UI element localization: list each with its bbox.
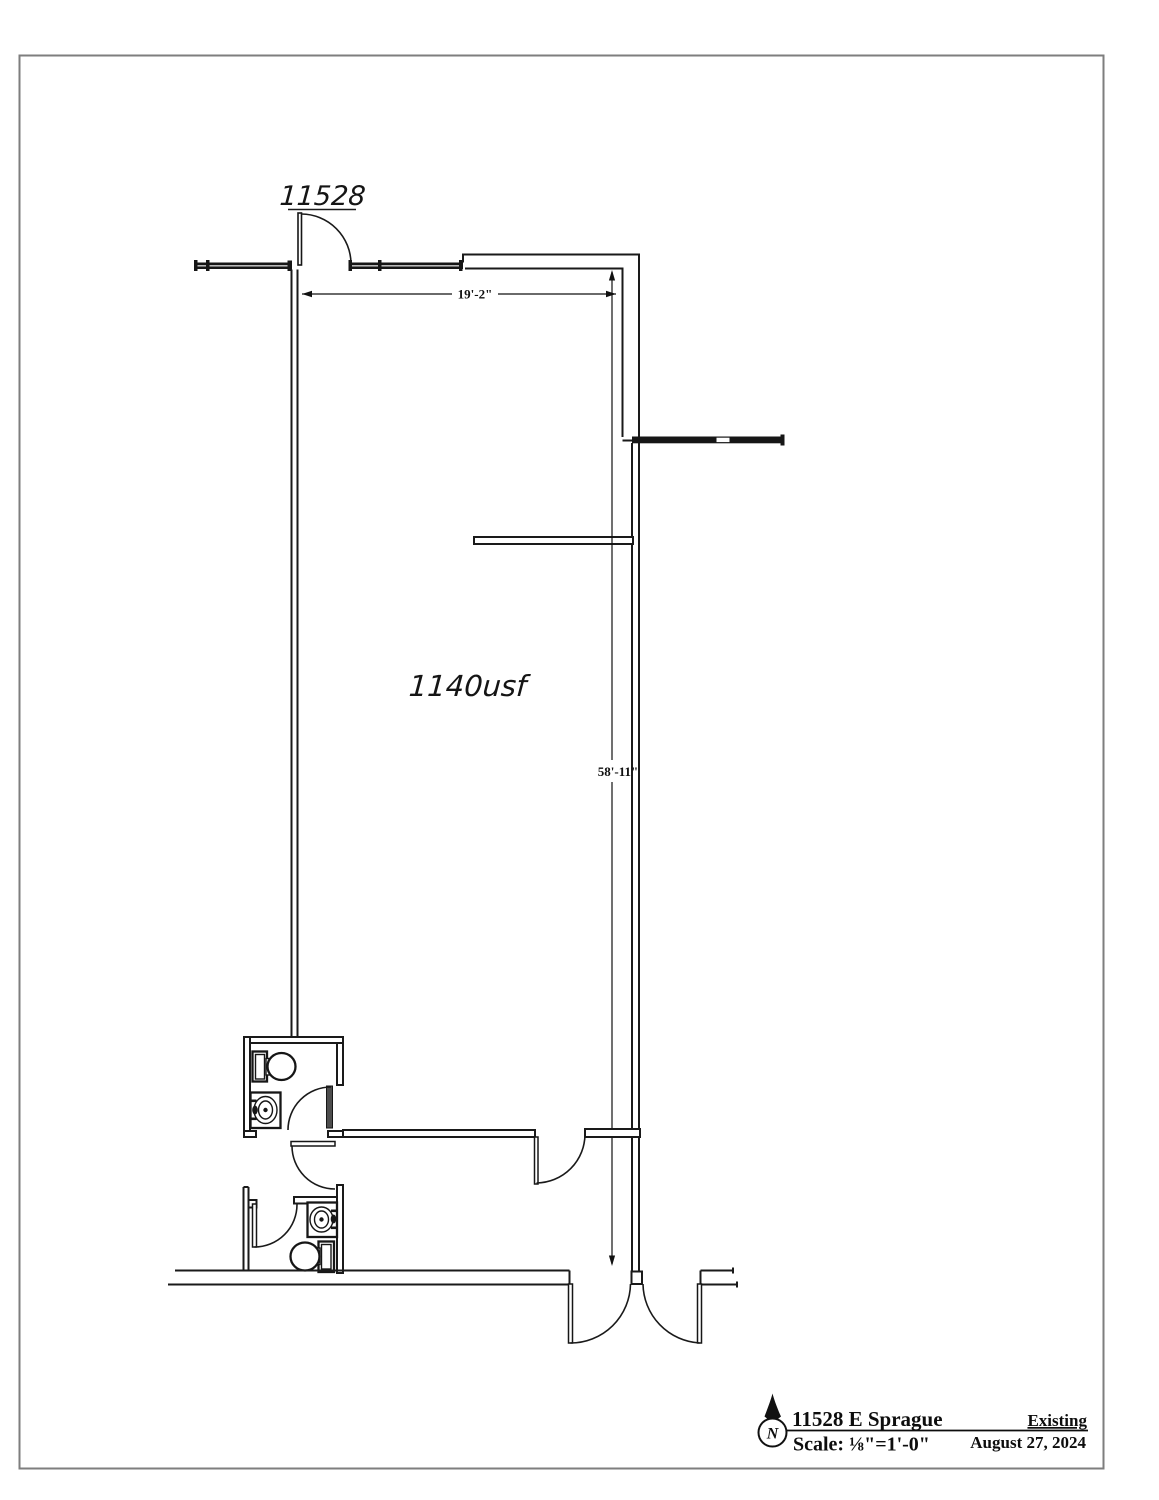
floor-plan-svg: 11528 1140usf 19'-2" 58'-11" (0, 0, 1159, 1500)
dimension-width-text: 19'-2" (458, 287, 493, 302)
restroom-lower (244, 1185, 344, 1273)
area-label: 1140usf (408, 669, 532, 703)
title-block: N 11528 E Sprague Scale: ⅛"=1'-0" Existi… (759, 1394, 1089, 1456)
dimension-width: 19'-2" (302, 287, 616, 302)
drawing-sheet: 11528 1140usf 19'-2" 58'-11" (0, 0, 1159, 1500)
window-marker (717, 438, 730, 442)
toilet-upper (253, 1052, 296, 1082)
unit-number-label: 11528 (279, 181, 367, 212)
door-center-post (632, 1272, 643, 1285)
south-wall (168, 1268, 737, 1288)
interior-partial-wall (474, 537, 633, 544)
hall-wall (343, 1130, 535, 1137)
perimeter-walls (292, 255, 640, 1273)
vestibule-door-leaf (291, 1142, 335, 1147)
entry-left-door-leaf (569, 1284, 573, 1343)
interior-door-east (535, 1134, 586, 1184)
entry-door-swing-arc (302, 214, 352, 264)
restroom-upper (244, 1037, 343, 1137)
entry-double-doors (569, 1284, 702, 1343)
restroom-upper-door-arc (288, 1087, 331, 1130)
toilet-lower (291, 1242, 335, 1273)
restroom-lower-door-arc (255, 1205, 298, 1248)
dimension-height-text: 58'-11" (598, 764, 638, 779)
entry-right-door-leaf (698, 1284, 702, 1343)
north-arrow-icon: N (759, 1394, 787, 1447)
entry-door (298, 213, 351, 265)
page-border (20, 56, 1104, 1469)
title-address: 11528 E Sprague (792, 1407, 943, 1431)
north-label: N (766, 1426, 780, 1443)
restroom-lower-door-leaf (253, 1204, 257, 1247)
entry-door-leaf (298, 213, 302, 265)
hall-wall-stub (585, 1129, 640, 1137)
interior-door-east-leaf (535, 1137, 539, 1184)
title-status: Existing (1027, 1411, 1087, 1430)
title-scale: Scale: ⅛"=1'-0" (793, 1434, 930, 1456)
east-wall-window (632, 435, 785, 446)
sink-lower (308, 1203, 338, 1238)
sink-upper (251, 1093, 281, 1129)
vestibule-door (291, 1142, 335, 1190)
title-date: August 27, 2024 (970, 1433, 1086, 1452)
restroom-upper-door-leaf (327, 1086, 333, 1128)
storefront-north-wall (194, 260, 463, 271)
